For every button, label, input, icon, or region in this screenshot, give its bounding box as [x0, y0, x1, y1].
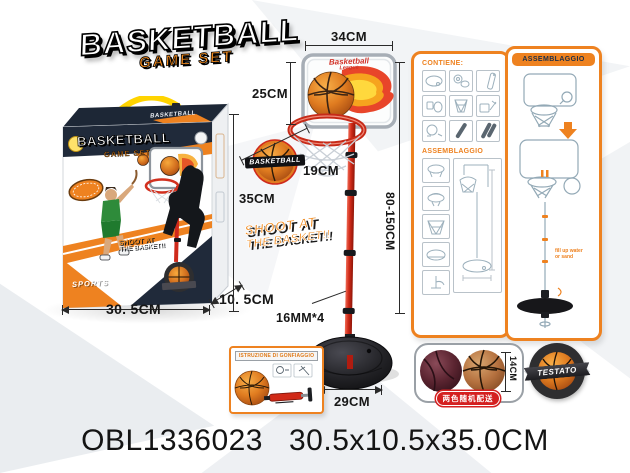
step-icon	[422, 270, 450, 295]
testato-badge: TESTATO	[529, 343, 585, 399]
dim-label-backboard-height: 25CM	[252, 86, 288, 101]
part-net-icon	[449, 95, 473, 117]
dim-label-backboard-width: 34CM	[331, 29, 367, 44]
basketball-badge-label: BASKETBALL	[249, 157, 301, 167]
dim-label-pole-tube: 16MM*4	[276, 311, 324, 325]
product-sheet: BASKETBALL GAME SET	[0, 0, 630, 473]
dim-label-ball-diameter: 14CM	[508, 356, 518, 381]
step-icon	[422, 242, 450, 267]
dim-label-base-width: 29CM	[334, 394, 370, 409]
assembly-note-line2: or sand	[555, 255, 593, 261]
contiene-assembly-title: ASSEMBLAGGIO	[422, 148, 507, 155]
assembly-note: fill up water or sand	[555, 249, 593, 260]
part-base-icon	[422, 70, 446, 92]
product-size: 30.5x10.5x35.0CM	[289, 424, 549, 458]
inflation-card-header: ISTRUZIONE DI GONFIAGGIO	[235, 351, 318, 361]
contiene-title: CONTIENE:	[422, 60, 507, 67]
assembly-panel-header: ASSEMBLAGGIO	[512, 53, 595, 66]
part-tube-icon	[449, 120, 473, 142]
inflation-card-title: ISTRUZIONE DI GONFIAGGIO	[239, 353, 314, 359]
dim-label-box-width: 30. 5CM	[106, 301, 161, 317]
dim-line-pole-height	[399, 62, 400, 314]
part-ring-icon	[422, 120, 446, 142]
part-pole-icon	[476, 70, 500, 92]
dim-line-backboard-height	[290, 62, 291, 125]
age-badge-icon	[195, 132, 207, 144]
dim-line-ball-diameter	[505, 352, 506, 392]
assembly-diagram-large	[508, 70, 593, 332]
step-icon	[422, 158, 450, 183]
assembly-diagram	[453, 158, 502, 293]
backboard-script: Basketball League	[317, 57, 381, 73]
assembly-panel-title: ASSEMBLAGGIO	[522, 56, 584, 63]
step-icon	[422, 214, 450, 239]
assembly-steps	[422, 158, 507, 295]
part-pump-icon	[476, 95, 500, 117]
part-tube-icon	[476, 120, 500, 142]
dim-label-pole-height: 80-150CM	[383, 192, 397, 250]
contiene-parts-grid	[422, 70, 507, 142]
pump-icon	[264, 387, 313, 404]
color-note-text: 两色随机配送	[443, 393, 494, 404]
footer-caption: OBL1336023 30.5x10.5x35.0CM	[0, 424, 630, 458]
pump-graphic	[231, 362, 318, 410]
color-note-pill: 两色随机配送	[436, 391, 500, 406]
product-code: OBL1336023	[81, 424, 263, 458]
contiene-panel: CONTIENE: ASSEMBLAGGIO	[411, 51, 510, 338]
dim-line-base-width	[318, 389, 382, 390]
step-icon	[422, 186, 450, 211]
dim-label-hoop-diameter: 19CM	[303, 163, 339, 178]
part-bracket-icon	[422, 95, 446, 117]
assembly-panel: ASSEMBLAGGIO	[505, 46, 602, 341]
dim-line-backboard-width	[305, 45, 393, 46]
ball-maroon	[420, 350, 462, 392]
inflation-card: ISTRUZIONE DI GONFIAGGIO	[229, 346, 324, 414]
testato-label: TESTATO	[537, 365, 577, 377]
box-sports-label: SPORTS	[72, 278, 109, 289]
basketball-badge: BASKETBALL	[252, 139, 298, 185]
part-washers-icon	[449, 70, 473, 92]
